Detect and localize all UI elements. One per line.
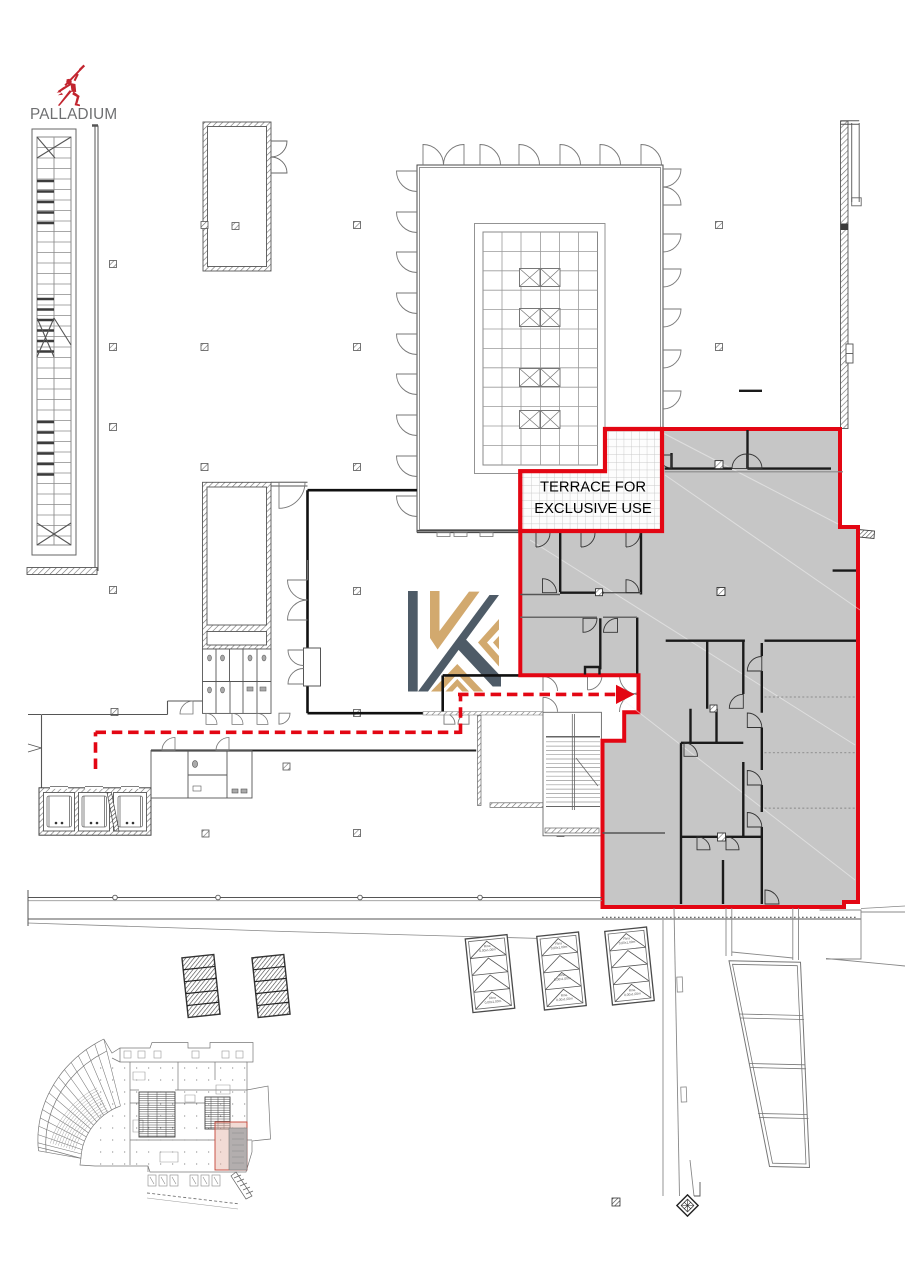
svg-text:EXCLUSIVE USE: EXCLUSIVE USE (534, 501, 652, 517)
svg-text:TERRACE FOR: TERRACE FOR (540, 480, 646, 496)
svg-text:PALLADIUM: PALLADIUM (30, 106, 117, 123)
